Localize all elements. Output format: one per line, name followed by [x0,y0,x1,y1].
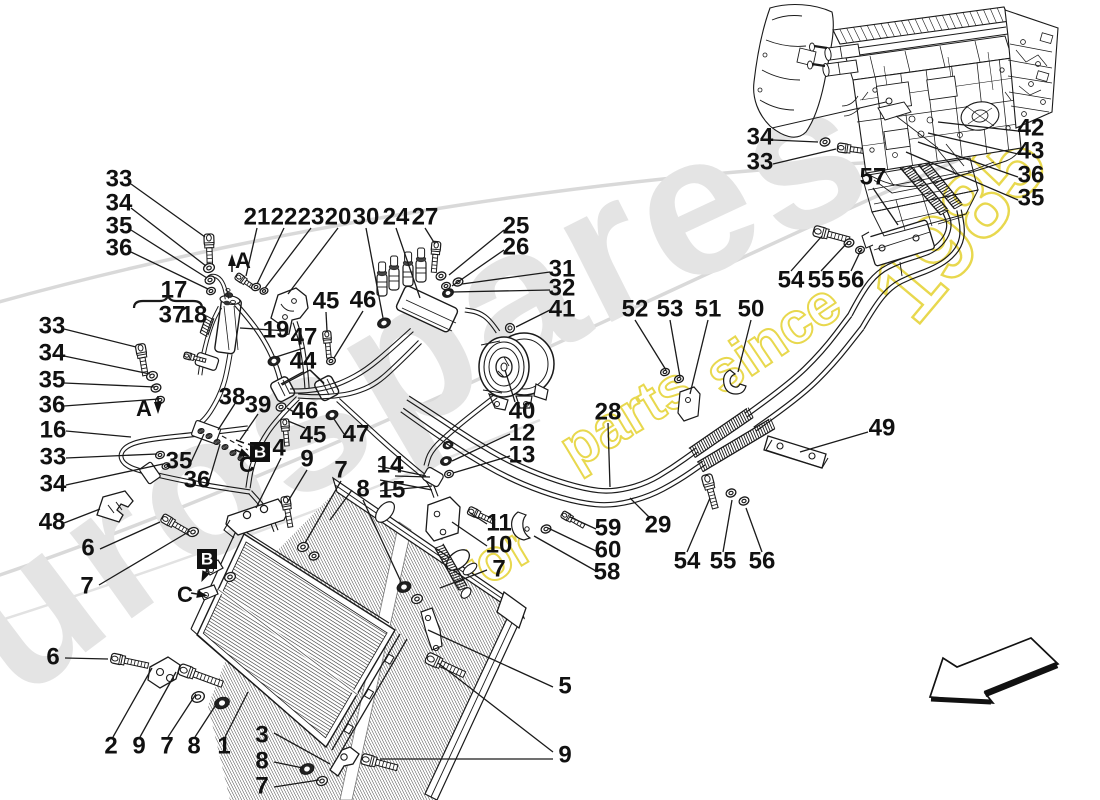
svg-text:A: A [235,248,251,273]
svg-text:58: 58 [594,558,621,585]
svg-text:7: 7 [80,572,93,599]
svg-text:57: 57 [860,163,887,190]
svg-text:53: 53 [657,295,684,322]
svg-text:45: 45 [300,421,327,448]
svg-text:46: 46 [292,397,319,424]
svg-text:35: 35 [1018,184,1045,211]
svg-text:48: 48 [39,508,66,535]
svg-text:23: 23 [298,203,325,230]
svg-text:5: 5 [558,672,571,699]
svg-text:4: 4 [272,434,286,461]
svg-text:7: 7 [334,456,347,483]
svg-text:50: 50 [738,295,765,322]
svg-text:9: 9 [558,741,571,768]
svg-text:26: 26 [503,233,530,260]
svg-text:46: 46 [350,286,377,313]
svg-text:2: 2 [104,732,117,759]
svg-text:8: 8 [255,747,268,774]
svg-text:B: B [201,549,213,568]
svg-text:47: 47 [291,323,318,350]
svg-text:3: 3 [255,721,268,748]
svg-text:33: 33 [747,148,774,175]
svg-text:47: 47 [343,420,370,447]
svg-text:49: 49 [869,414,896,441]
svg-text:27: 27 [412,203,439,230]
svg-text:34: 34 [747,123,774,150]
svg-text:30: 30 [353,203,380,230]
svg-text:1: 1 [217,732,230,759]
svg-text:33: 33 [106,165,133,192]
svg-text:14: 14 [377,451,404,478]
svg-text:36: 36 [39,391,66,418]
svg-text:7: 7 [255,772,268,799]
svg-text:34: 34 [40,470,67,497]
svg-text:24: 24 [383,203,410,230]
svg-text:13: 13 [509,441,536,468]
svg-text:7: 7 [160,732,173,759]
svg-text:33: 33 [39,312,66,339]
svg-text:43: 43 [1018,137,1045,164]
svg-text:C: C [177,582,193,607]
svg-text:28: 28 [595,398,622,425]
svg-text:45: 45 [313,287,340,314]
svg-text:16: 16 [40,416,67,443]
svg-text:8: 8 [187,732,200,759]
svg-text:52: 52 [622,295,649,322]
svg-text:40: 40 [509,397,536,424]
svg-text:22: 22 [271,203,298,230]
svg-text:6: 6 [46,643,59,670]
svg-text:35: 35 [39,366,66,393]
svg-text:18: 18 [181,301,208,328]
svg-text:34: 34 [39,339,66,366]
svg-text:8: 8 [356,475,369,502]
svg-text:9: 9 [132,732,145,759]
svg-text:7: 7 [492,555,505,582]
svg-text:36: 36 [106,234,133,261]
svg-text:51: 51 [695,295,722,322]
svg-text:6: 6 [81,534,94,561]
svg-text:41: 41 [549,295,576,322]
svg-text:33: 33 [40,443,67,470]
svg-text:10: 10 [486,531,513,558]
svg-text:36: 36 [184,466,211,493]
svg-text:21: 21 [244,203,271,230]
svg-text:20: 20 [325,203,352,230]
svg-text:38: 38 [219,383,246,410]
svg-text:9: 9 [300,445,313,472]
svg-text:29: 29 [645,511,672,538]
